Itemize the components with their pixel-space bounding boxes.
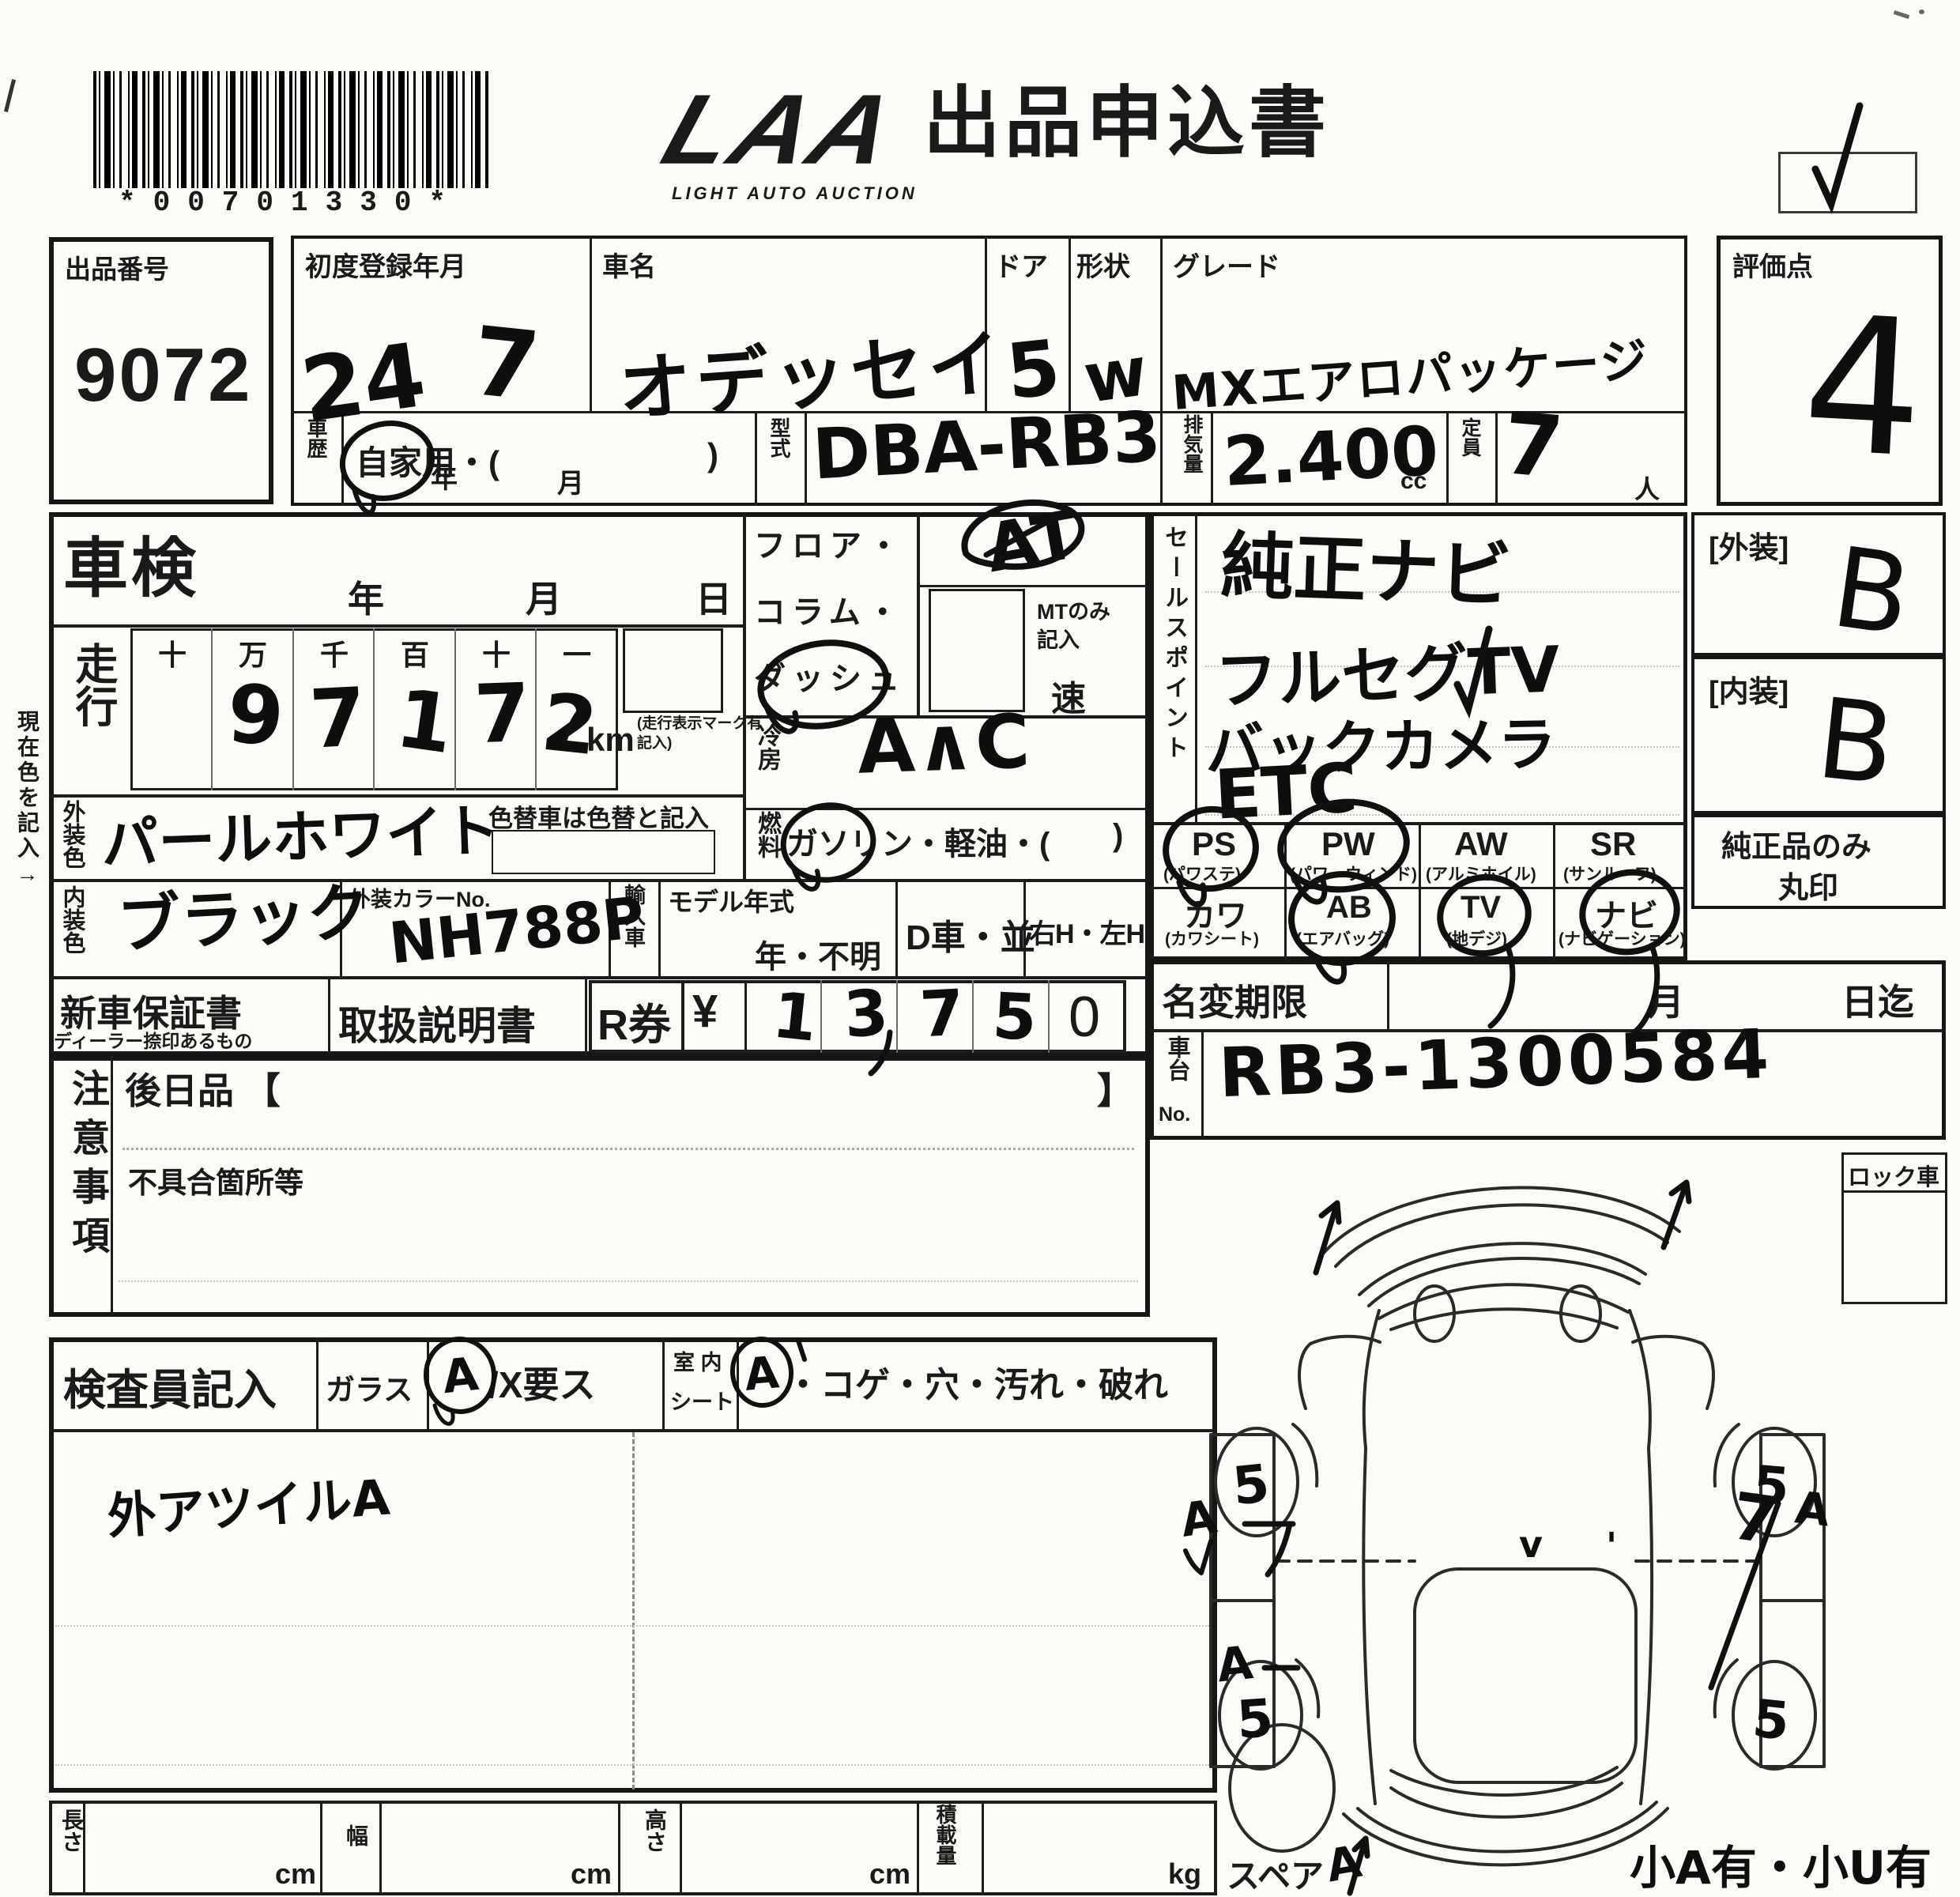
equip-ab: AB	[1326, 890, 1372, 926]
handle: 右H・左H	[1029, 912, 1144, 951]
equip-pw: PW	[1321, 825, 1375, 863]
equip-aw-name: (アルミホイル)	[1426, 862, 1536, 885]
mt-note2: 記入	[1037, 623, 1080, 654]
lot-number: 9072	[74, 332, 253, 419]
width-cm: cm	[571, 1857, 612, 1891]
load-label: 積載量	[931, 1804, 960, 1865]
dims-row	[49, 1801, 1217, 1895]
reg-year-unit: 年	[431, 457, 458, 496]
equip-ab-name: (エアバッグ)	[1296, 926, 1389, 950]
sales-item-1: 純正ナビ	[1219, 507, 1513, 623]
mark-a-right: A	[1792, 1482, 1833, 1537]
shaken-month: 月	[526, 571, 562, 623]
mileage-d2: 7	[307, 670, 368, 767]
equip-sr: SR	[1590, 825, 1636, 863]
history-value: 自家用・(	[356, 436, 499, 485]
car-diagram: 5 5 5 5 A A A 7 A v ' スペア	[1154, 1146, 1960, 1897]
wheel-mark-rr: 5	[1750, 1688, 1792, 1752]
shaken-label: 車検	[63, 515, 199, 609]
mark-v-mid: v	[1519, 1523, 1543, 1566]
shaken-year: 年	[348, 571, 384, 623]
trans-line1: フロア・	[754, 520, 906, 566]
model-year-value: 年・不明	[755, 931, 881, 977]
mark-a-left: A	[1178, 1489, 1220, 1548]
check-box	[1778, 152, 1917, 213]
fuel-close: )	[1113, 818, 1123, 854]
ac-hw: A∧C	[856, 699, 1031, 791]
car-name-label: 車名	[602, 245, 656, 284]
namechange-label: 名変期限	[1162, 974, 1307, 1026]
glass-label: ガラス	[326, 1366, 413, 1409]
equip-aw: AW	[1454, 825, 1508, 863]
reg-month-unit: 月	[557, 462, 584, 500]
int-grade-hw: B	[1811, 674, 1901, 810]
length-label: 長さ	[55, 1808, 87, 1853]
mileage-mark-box	[623, 628, 723, 713]
capacity-hw: 7	[1499, 394, 1567, 498]
seat-a: A	[742, 1347, 781, 1401]
later-items-label: 後日品 【	[125, 1062, 281, 1114]
reg-year-hw: 24	[296, 324, 432, 443]
mileage-h-hyaku: 百	[401, 632, 429, 673]
genuine-note-2: 丸印	[1778, 863, 1838, 907]
notes-label: 注意事項	[58, 1069, 114, 1265]
disp-hw: 2.400	[1222, 412, 1441, 502]
width-label: 幅	[340, 1824, 371, 1846]
height-label: 高さ	[639, 1808, 670, 1853]
capacity-unit: 人	[1634, 470, 1660, 506]
mileage-unit: km	[586, 721, 635, 759]
mark-comma-mid: '	[1606, 1525, 1617, 1567]
barcode	[93, 71, 490, 188]
history-close: )	[707, 436, 718, 474]
door-label: ドア	[994, 245, 1048, 284]
repaint-note: 色替車は色替と記入	[488, 798, 709, 834]
mileage-d1: 9	[224, 667, 287, 765]
mark-7-right: 7	[1727, 1479, 1782, 1559]
trans-at-hw: AT	[980, 496, 1084, 588]
model-year-label: モデル年式	[668, 882, 794, 918]
defects-label: 不具合箇所等	[128, 1159, 303, 1201]
glass-a: A	[440, 1347, 481, 1404]
equip-navi-name: (ナビゲーション)	[1559, 926, 1686, 950]
yen-sign: ¥	[692, 985, 718, 1038]
ext-color-label: 外装色	[55, 800, 89, 869]
shaken-day: 日	[695, 571, 732, 623]
spare-label: スペア	[1227, 1857, 1324, 1895]
inspector-label: 検査員記入	[63, 1355, 277, 1417]
speed-box	[929, 589, 1025, 712]
equip-kawa-name: (カワシート)	[1165, 926, 1259, 950]
namechange-until: 日迄	[1841, 974, 1914, 1026]
ac-label: 冷房	[749, 723, 784, 771]
warranty-sub: ディーラー捺印あるもの	[54, 1026, 252, 1053]
d-car: D車・並	[906, 909, 1035, 960]
equip-tv: TV	[1461, 890, 1501, 926]
mt-note1: MTのみ	[1037, 594, 1110, 625]
capacity-label: 定員	[1456, 417, 1484, 457]
equip-ps-name: (パワステ)	[1163, 862, 1241, 885]
mileage-note: (走行表示マーク有記入)	[637, 715, 763, 753]
scan-artifact	[1919, 9, 1924, 14]
manual-label: 取扱説明書	[338, 994, 536, 1051]
reg-month-hw: 7	[467, 307, 545, 423]
glass-value: /X要ス	[488, 1356, 595, 1409]
int-color-label: 内装色	[55, 885, 89, 954]
barcode-text: *00701330*	[119, 187, 463, 219]
ext-grade-label: [外装]	[1709, 523, 1788, 567]
length-cm: cm	[275, 1857, 316, 1891]
equip-tv-name: (地デジ)	[1446, 926, 1507, 950]
mileage-h-10man: 十	[158, 632, 187, 673]
int-color-hw: ブラック	[115, 862, 372, 967]
chassis-no-label: No.	[1159, 1103, 1190, 1126]
equip-pw-name: (パワーウィンド)	[1290, 862, 1417, 885]
seat-label-1: 室 内	[673, 1345, 722, 1376]
score-label: 評価点	[1732, 245, 1813, 284]
wheel-mark-fl: 5	[1230, 1453, 1272, 1517]
height-cm: cm	[869, 1857, 910, 1891]
scan-artifact	[1894, 10, 1910, 19]
trans-line2: コラム・	[754, 586, 905, 632]
margin-note: 現在色を記入→	[11, 710, 43, 889]
int-grade-label: [内装]	[1709, 667, 1788, 711]
seat-value: ・コゲ・穴・汚れ・破れ	[786, 1356, 1168, 1407]
page-title: 出品申込書	[923, 60, 1330, 172]
trans-line3: ダッシュ	[754, 653, 906, 699]
fuel-value: ガソリン・軽油・(	[786, 818, 1050, 864]
seat-label-2: シート	[670, 1385, 734, 1416]
grade-label: グレード	[1173, 245, 1280, 284]
repaint-box	[492, 830, 715, 874]
mileage-d4: 7	[473, 666, 532, 762]
laa-logo-sub: LIGHT AUTO AUCTION	[672, 183, 918, 204]
mileage-h-ichi: 一	[563, 632, 591, 673]
price-d1: 1	[769, 978, 820, 1055]
sales-label: セールスポイント	[1156, 525, 1191, 765]
laa-logo: LAA	[650, 73, 911, 186]
price-d2: 3	[842, 975, 891, 1052]
lot-label: 出品番号	[65, 248, 169, 286]
mark-a-left2: A	[1215, 1635, 1256, 1692]
diagram-note-hw: 小A有・小U有	[1630, 1831, 1932, 1897]
equip-sr-name: (サンルーフ)	[1563, 862, 1657, 885]
genuine-note-1: 純正品のみ	[1721, 822, 1871, 866]
reg-label: 初度登録年月	[305, 245, 466, 284]
wheel-mark-rl: 5	[1234, 1688, 1275, 1751]
scan-artifact	[4, 79, 16, 112]
price-d4: 5	[991, 979, 1038, 1055]
score-hw: 4	[1798, 275, 1929, 500]
mileage-label: 走行	[62, 642, 124, 727]
price-d3: 7	[918, 976, 966, 1052]
fuel-label: 燃料	[749, 811, 784, 858]
speed-label: 速	[1051, 670, 1086, 721]
shape-label: 形状	[1076, 245, 1130, 284]
later-items-close: 】	[1097, 1062, 1133, 1114]
equip-ps: PS	[1192, 825, 1236, 863]
chassis-label: 車台	[1160, 1035, 1193, 1081]
r-ticket-label: R券	[597, 990, 671, 1052]
auction-sheet: *00701330* LAA LIGHT AUTO AUCTION 出品申込書 …	[0, 0, 1960, 1897]
price-d5: 0	[1069, 985, 1100, 1050]
mileage-h-sen: 千	[320, 632, 349, 673]
